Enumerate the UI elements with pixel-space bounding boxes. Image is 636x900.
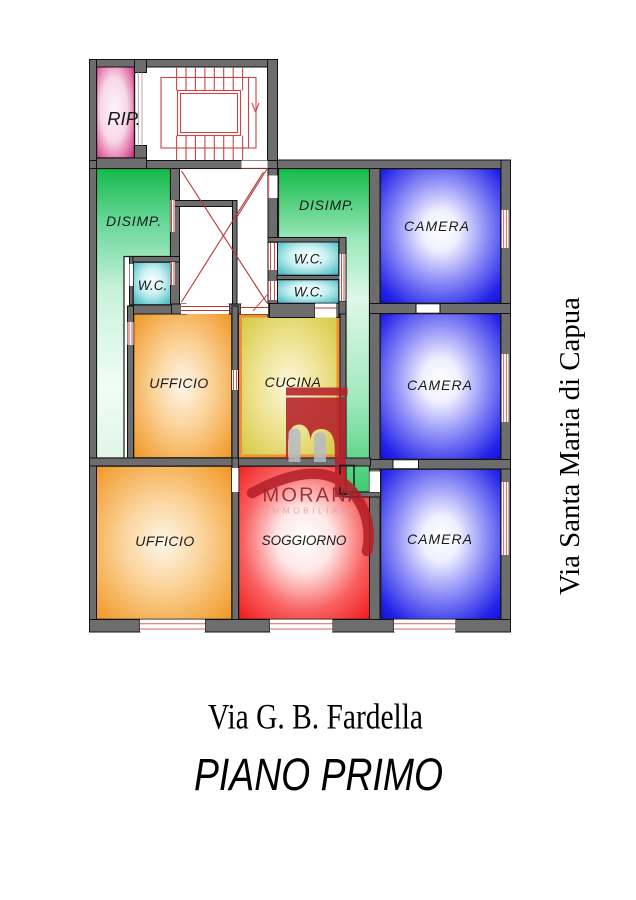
svg-text:CAMERA: CAMERA — [407, 377, 473, 393]
svg-text:Via G. B. Fardella: Via G. B. Fardella — [208, 697, 423, 737]
svg-text:CAMERA: CAMERA — [404, 218, 470, 234]
svg-text:UFFICIO: UFFICIO — [149, 375, 209, 391]
svg-text:MORANA: MORANA — [263, 485, 364, 507]
svg-text:CAMERA: CAMERA — [407, 531, 473, 547]
svg-text:UFFICIO: UFFICIO — [135, 533, 195, 549]
svg-text:Via Santa Maria di Capua: Via Santa Maria di Capua — [554, 297, 586, 595]
svg-text:RIP.: RIP. — [107, 108, 141, 129]
svg-text:IMMOBILIARE: IMMOBILIARE — [266, 506, 359, 516]
svg-text:W.C.: W.C. — [294, 252, 324, 267]
svg-text:W.C.: W.C. — [138, 278, 168, 293]
svg-text:W.C.: W.C. — [294, 285, 324, 300]
svg-text:DISIMP.: DISIMP. — [106, 213, 162, 229]
svg-text:DISIMP.: DISIMP. — [299, 197, 355, 213]
svg-text:SOGGIORNO: SOGGIORNO — [262, 533, 347, 548]
svg-text:PIANO PRIMO: PIANO PRIMO — [194, 749, 443, 800]
